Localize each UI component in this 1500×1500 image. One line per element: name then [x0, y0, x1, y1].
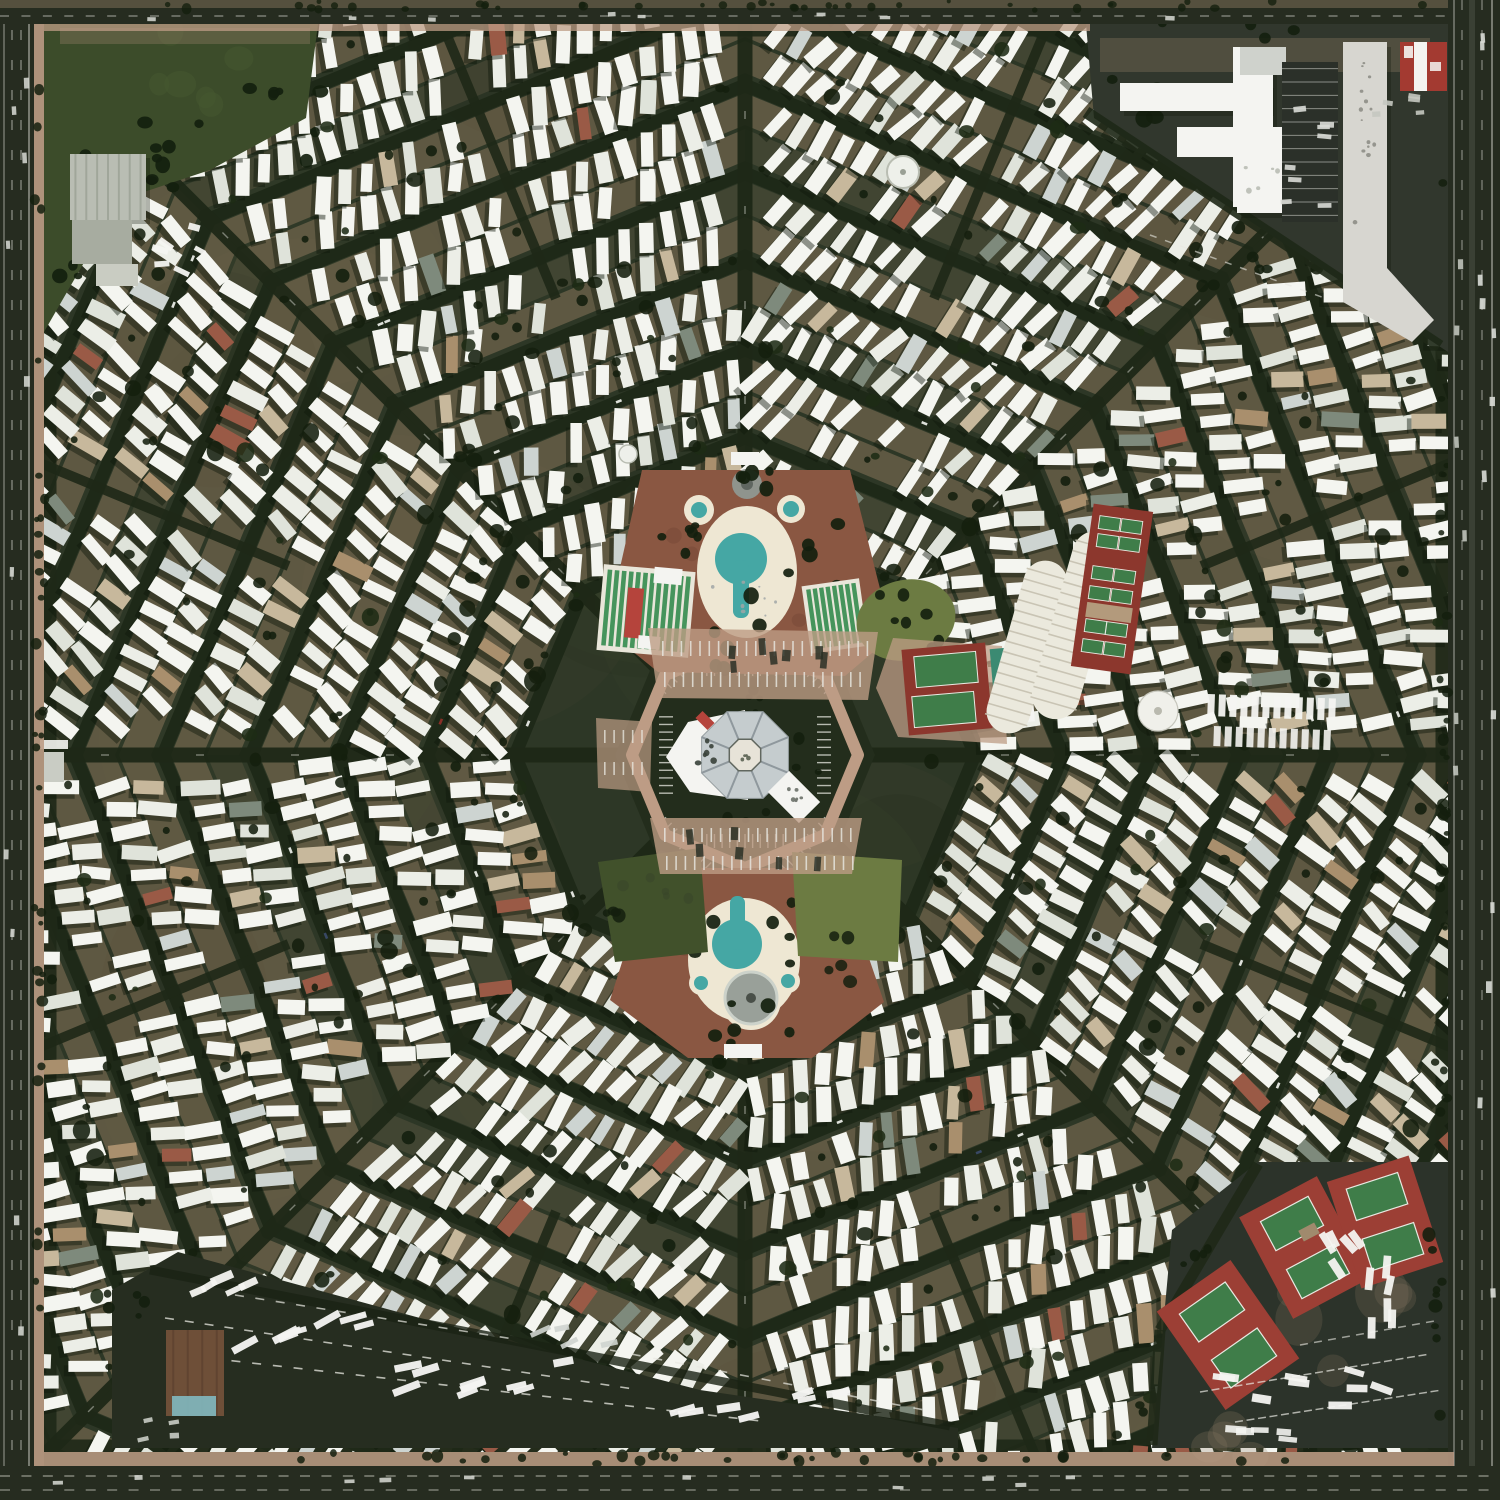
aerial-photograph	[0, 0, 1500, 1500]
west-entrance	[40, 740, 68, 782]
scene-canvas	[0, 0, 1500, 1500]
